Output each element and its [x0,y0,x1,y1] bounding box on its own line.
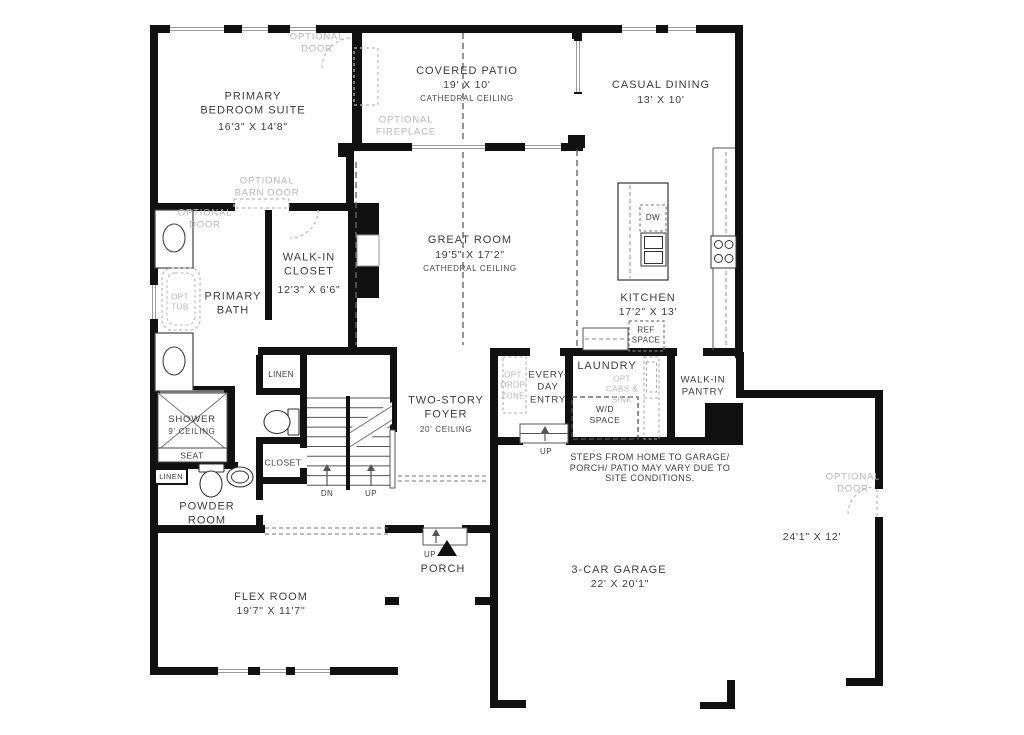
optional-barn-door-track [234,199,289,208]
porch-steps [423,528,467,545]
porch-up-label: UP [424,550,436,560]
room-ceiling-covered-patio: CATHEDRAL CEILING [420,94,514,104]
toilet-icon [199,464,224,497]
window-icon [216,667,250,675]
room-label-primary-bath: PRIMARY BATH [198,290,268,319]
fireplace-niche [357,235,379,266]
room-ceiling-great-room: CATHEDRAL CEILING [423,264,517,274]
window-icon [293,667,332,675]
room-dims-primary-bedroom: 16'3" X 14'8" [218,121,288,135]
room-label-casual-dining: CASUAL DINING [612,78,710,92]
room-dims-garage: 22' X 20'1" [591,578,650,592]
shower-label: SHOWER [162,414,222,426]
room-label-flex-room: FLEX ROOM [216,590,326,604]
room-label-powder-room: POWDER ROOM [172,500,242,529]
optional-tub-label: OPT TUB [165,293,195,314]
stairs [307,396,395,490]
shower-ceiling-label: 9' CEILING [168,427,215,437]
hall-closet-label: CLOSET [264,457,301,468]
optional-door-arc-bath [290,210,318,238]
optional-door-label-bedroom: OPTIONAL DOOR [286,32,348,57]
garage-bay-dims: 24'1" X 12' [783,531,842,545]
room-label-kitchen: KITCHEN [620,291,675,305]
cooktop-icon [711,236,736,268]
window-icon [240,25,270,33]
linen-powder-label: LINEN [159,472,183,482]
window-icon [168,25,226,33]
stairs-dn-label: DN [321,489,333,499]
entry-up-label: UP [540,447,552,457]
window-icon [258,667,288,675]
entry-steps [520,424,568,443]
room-label-everyday-entry: EVERY-DAY ENTRY [524,369,572,406]
optional-barn-door-label: OPTIONAL BARN DOOR [227,176,307,201]
room-dims-kitchen: 17'2" X 13' [619,306,678,320]
room-dims-casual-dining: 13' X 10' [637,94,684,108]
room-label-laundry: LAUNDRY [577,359,636,373]
room-label-two-story-foyer: TWO-STORY FOYER [399,394,494,423]
room-dims-great-room: 19'5" X 17'2" [435,249,505,263]
window-icon [523,143,563,151]
site-note: STEPS FROM HOME TO GARAGE/ PORCH/ PATIO … [563,452,738,484]
window-icon [410,143,487,151]
dishwasher-label: DW [646,213,660,223]
room-label-garage: 3-CAR GARAGE [571,563,666,577]
ref-space-label: REF SPACE [626,326,666,347]
room-dims-flex-room: 19'7" X 11'7" [237,605,306,619]
optional-door-label-bath: OPTIONAL DOOR [174,208,236,233]
kitchen-cabinet [583,328,628,350]
opt-cabs-sink-label: OPT CABS & SINK [603,374,641,405]
optional-door-label-garage: OPTIONAL DOOR [822,472,884,497]
vanity-sink-icon [155,333,193,391]
shower-seat-label: SEAT [180,450,204,461]
toilet-icon [264,409,299,435]
window-icon [620,25,658,33]
room-ceiling-foyer: 20' CEILING [420,425,472,435]
room-label-covered-patio: COVERED PATIO [416,64,518,78]
room-dims-covered-patio: 19' X 10' [443,79,490,93]
optional-fireplace-label: OPTIONAL FIREPLACE [373,115,439,140]
round-sink-icon [227,467,253,487]
window-icon [150,283,158,321]
laundry-cabs-box [644,357,659,439]
stairs-up-label: UP [365,489,377,499]
linen-hall-label: LINEN [268,370,294,380]
room-label-walk-in-pantry: WALK-IN PANTRY [674,375,732,400]
room-label-walk-in-closet: WALK-IN CLOSET [274,251,344,280]
window-icon [666,25,698,33]
wd-space-label: W/D SPACE [583,404,628,426]
floor-plan: PRIMARY BEDROOM SUITE 16'3" X 14'8" OPTI… [0,0,1024,735]
room-label-primary-bedroom: PRIMARY BEDROOM SUITE [200,90,306,119]
room-label-porch: PORCH [421,562,466,576]
window-icon [574,39,582,94]
kitchen-island [618,183,668,280]
open-to-below-lines [265,476,488,534]
room-label-great-room: GREAT ROOM [428,233,512,247]
floor-plan-drawing [0,0,1024,735]
room-dims-walk-in-closet: 12'3" X 6'6" [277,284,340,298]
